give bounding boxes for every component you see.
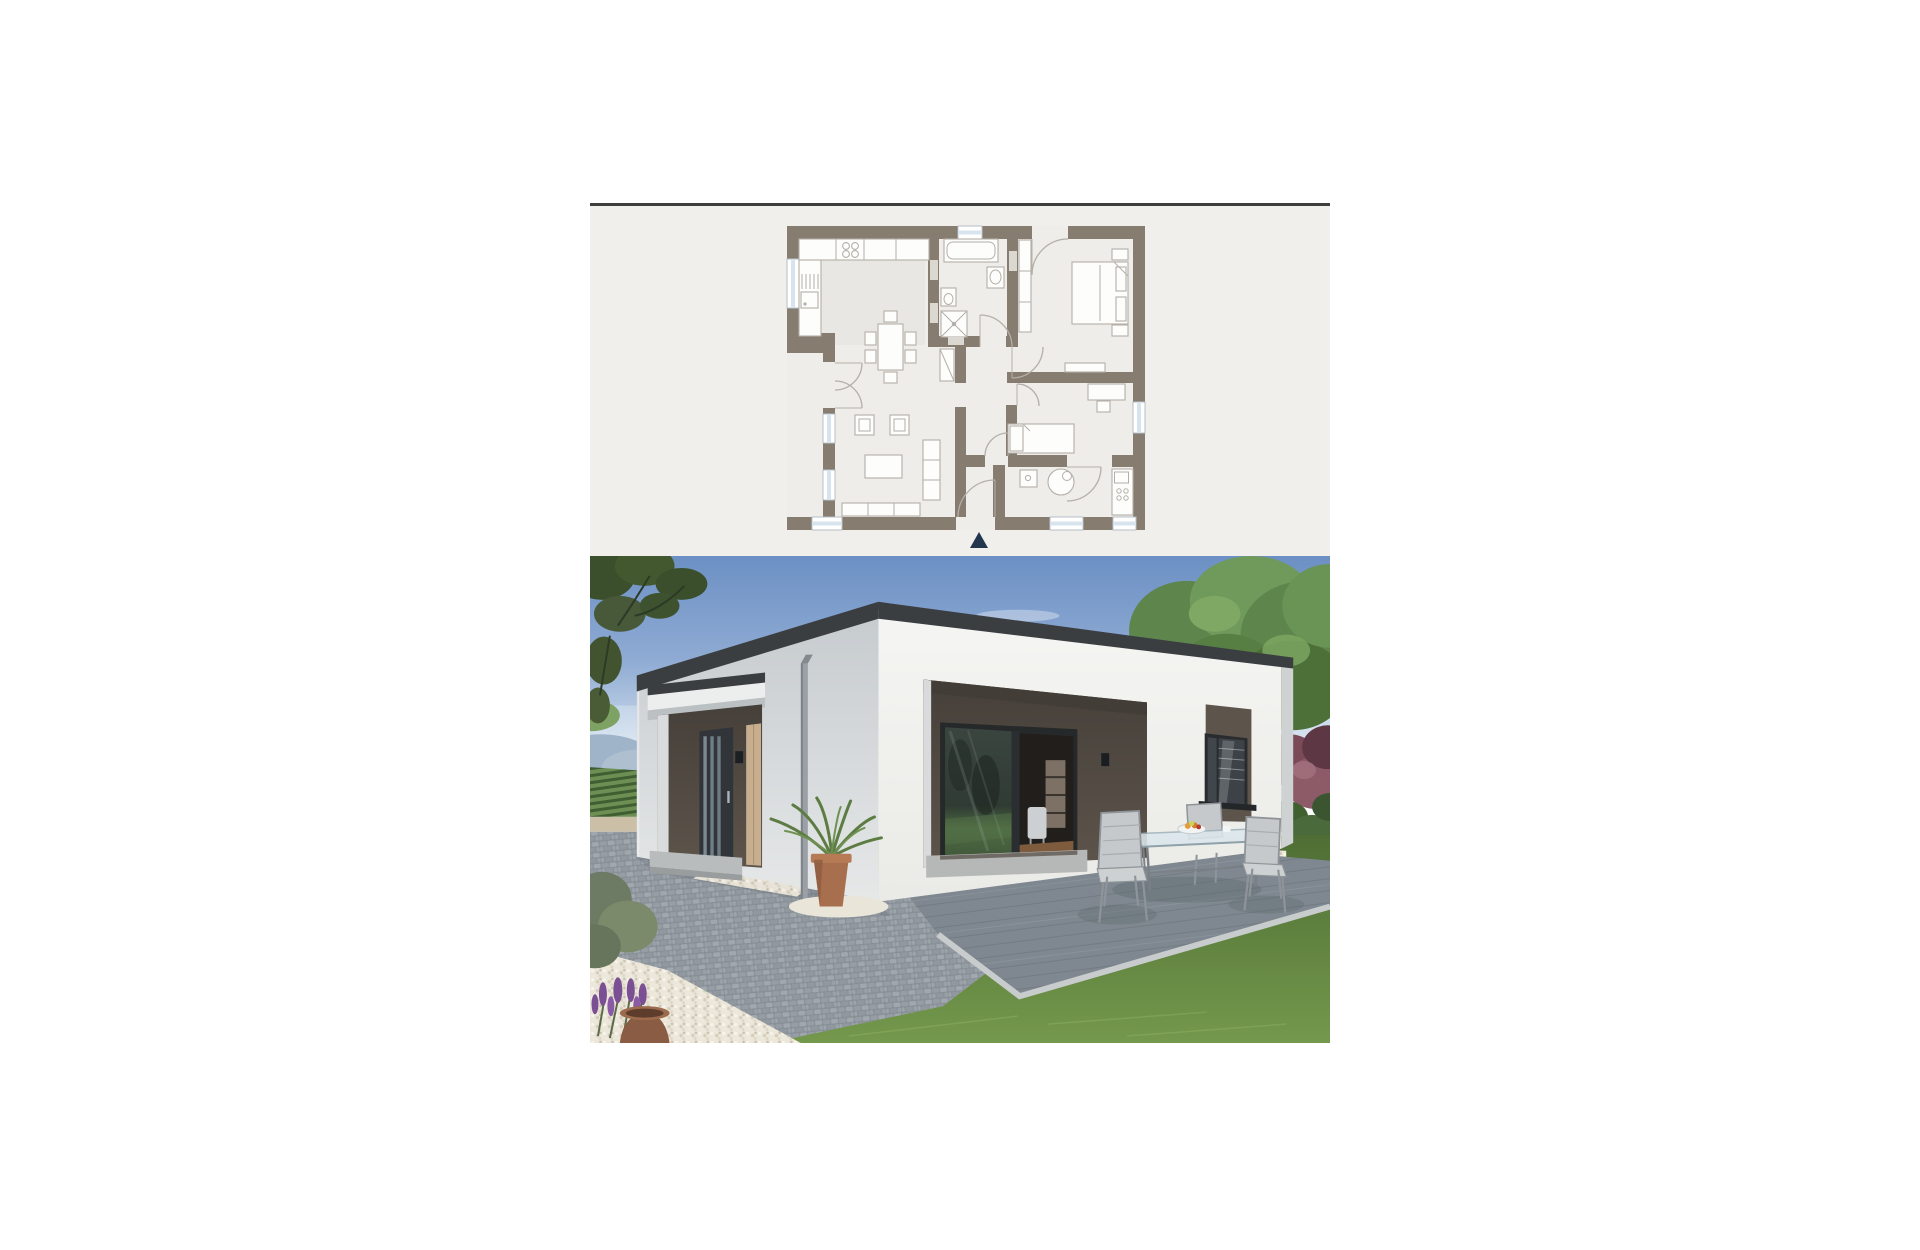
- floor-plan-panel: [590, 206, 1330, 556]
- window-left-living-1: [823, 414, 835, 443]
- corridor: [940, 349, 954, 381]
- coffee-table: [865, 455, 902, 478]
- dining-chair: [884, 311, 897, 322]
- window-left-living-2: [823, 470, 835, 500]
- dining-chair: [865, 350, 876, 363]
- dining-chair: [905, 350, 916, 363]
- entrance-wall-lamp: [735, 751, 743, 763]
- window-right-childroom: [1133, 402, 1145, 433]
- window-bottom-utility-2: [1113, 517, 1136, 530]
- floor-plan-drawing: [590, 206, 1330, 556]
- cup: [1223, 826, 1231, 832]
- sliding-glass-doors: [940, 722, 1077, 863]
- armchair: [890, 415, 909, 435]
- utility-counter: [1112, 469, 1133, 515]
- open-door-interior: [1020, 733, 1074, 854]
- nightstand: [1112, 325, 1128, 336]
- front-door: [699, 727, 733, 862]
- kitchen-sink: [801, 292, 818, 308]
- dining-chair: [865, 332, 876, 345]
- armchair: [855, 415, 874, 435]
- niche-left-reveal: [923, 679, 931, 867]
- bedroom-wardrobe: [1019, 240, 1031, 332]
- dining-chair: [905, 332, 916, 345]
- entrance-reveal: [658, 714, 669, 858]
- toilet: [941, 288, 956, 306]
- dining-table: [878, 324, 903, 370]
- shower: [941, 311, 967, 337]
- interior-shelf: [1046, 760, 1066, 828]
- niche-wall-lamp: [1101, 753, 1109, 766]
- exterior-render-photo: [590, 556, 1330, 1043]
- pillow: [1116, 267, 1126, 291]
- interior-chair: [1028, 807, 1047, 839]
- side-sofa: [923, 440, 940, 500]
- pillow: [1116, 297, 1126, 321]
- door-handle: [727, 791, 729, 803]
- window-with-blinds: [1205, 733, 1248, 807]
- bungalow-house: [637, 602, 1293, 902]
- long-sofa: [842, 503, 920, 516]
- door-stile: [1012, 731, 1020, 853]
- bench: [1065, 363, 1105, 372]
- window-top-bath: [958, 226, 982, 239]
- window-bottom-utility-1: [1050, 517, 1083, 530]
- east-wall-sliver: [1281, 664, 1293, 849]
- property-listing-image: [590, 203, 1330, 1043]
- dining-chair: [884, 372, 897, 383]
- nightstand: [1112, 249, 1128, 260]
- north-arrow: [970, 532, 988, 548]
- desk: [1088, 384, 1125, 400]
- window-bottom-living: [812, 517, 842, 530]
- page-canvas: [0, 0, 1920, 1250]
- pillow: [1010, 426, 1023, 451]
- washing-machine: [1020, 470, 1037, 487]
- desk-chair: [1097, 401, 1110, 412]
- window-left-kitchen: [787, 259, 799, 308]
